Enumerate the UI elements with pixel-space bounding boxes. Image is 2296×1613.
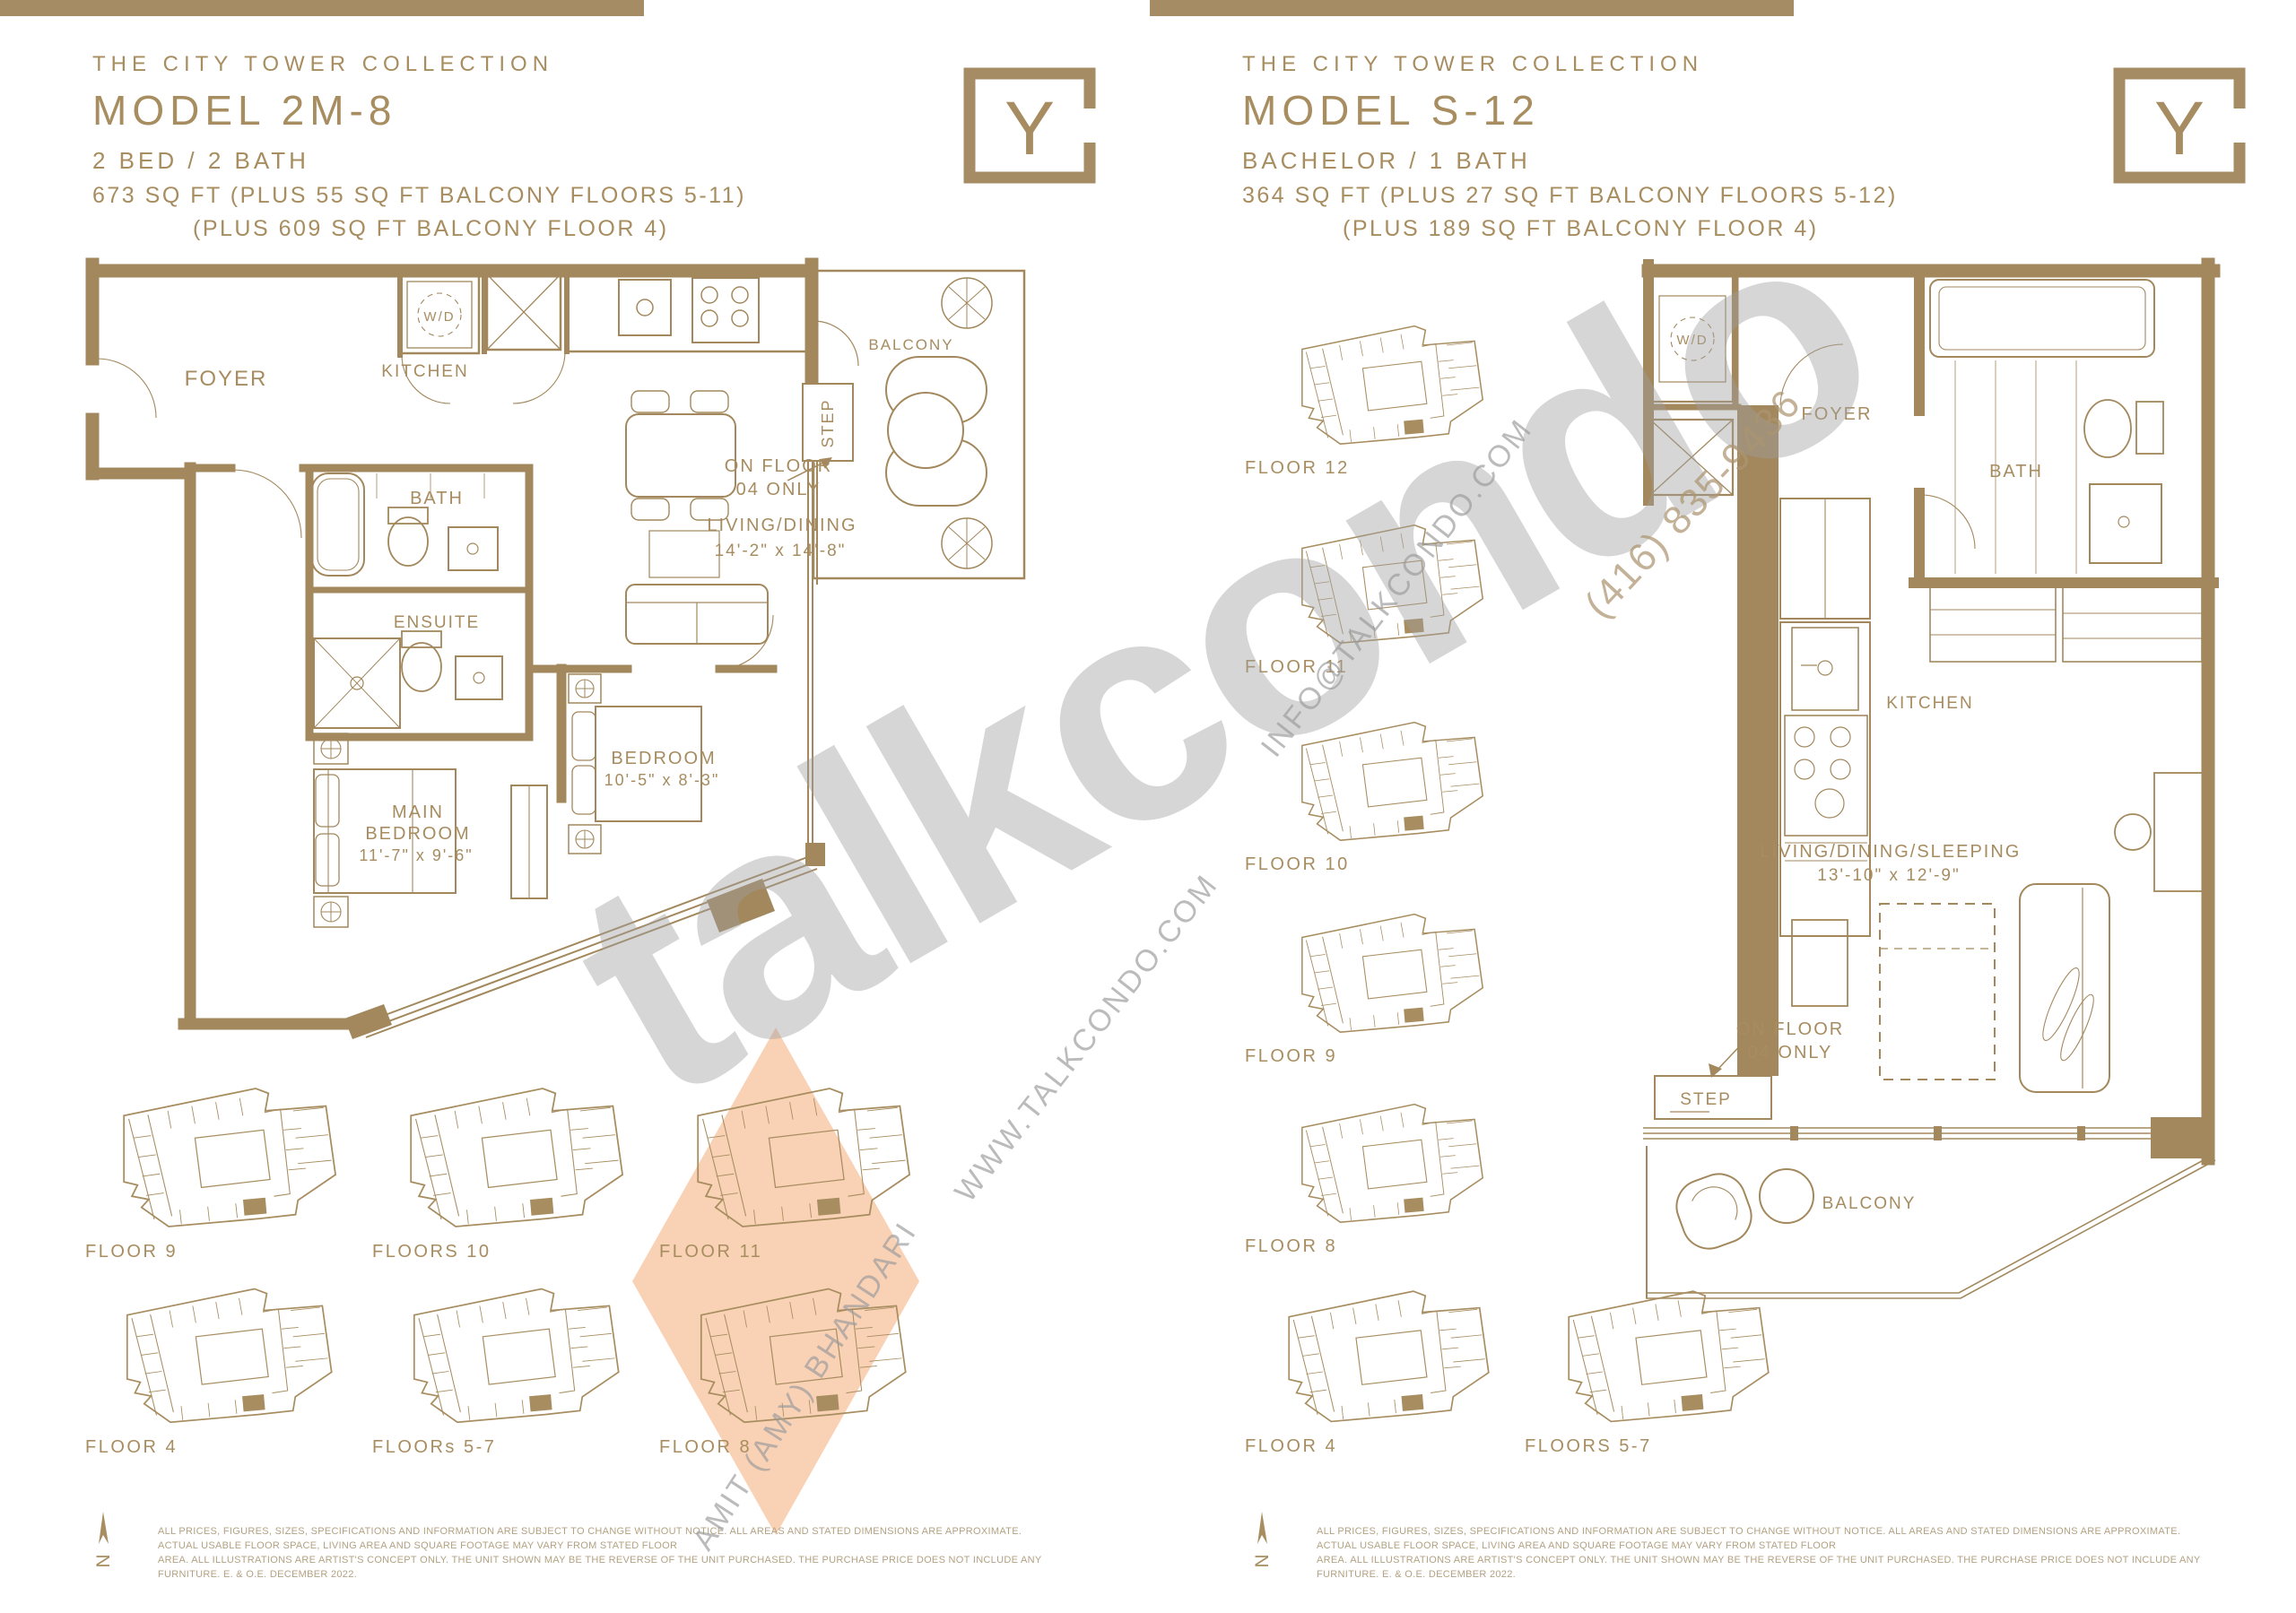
room-dims-living: 14'-2" x 14'-8": [715, 542, 847, 560]
keyplan-drawing: [659, 1275, 928, 1429]
room-label-kitchen: KITCHEN: [1886, 694, 1973, 713]
room-label-living: LIVING/DINING: [707, 516, 857, 535]
on-floor-note-line2: 04 ONLY: [1748, 1043, 1833, 1062]
keyplan-drawing: [1245, 710, 1523, 846]
disclaimer-line2: AREA. ALL ILLUSTRATIONS ARE ARTIST'S CON…: [1317, 1553, 2213, 1582]
unit-area-line1: 673 SQ FT (PLUS 55 SQ FT BALCONY FLOORS …: [92, 183, 746, 209]
keyplan-floors-5-7: FLOORs 5-7: [372, 1275, 641, 1458]
keyplan-drawing: [1245, 513, 1523, 649]
unit-area-line2: (PLUS 189 SQ FT BALCONY FLOOR 4): [1242, 216, 1898, 242]
keyplan-drawing: [85, 1074, 354, 1234]
top-accent-bar-right: [1150, 0, 1794, 16]
on-floor-note-line2: 04 ONLY: [736, 480, 822, 499]
keyplan-label: FLOOR 11: [1245, 657, 1523, 678]
unit-type: BACHELOR / 1 BATH: [1242, 147, 1898, 175]
floorplan-s12: W/D FOYER BATH KITCHEN LIVING/DINING/SLE…: [1641, 256, 2233, 1314]
keyplan-floor-12: FLOOR 12: [1245, 314, 1523, 479]
keyplan-floor-11: FLOOR 11: [659, 1074, 928, 1262]
north-arrow-icon: N: [86, 1508, 118, 1572]
room-label-ensuite: ENSUITE: [394, 613, 480, 632]
keyplan-label: FLOORs 5-7: [372, 1437, 641, 1458]
keyplan-floors-10: FLOORS 10: [372, 1074, 641, 1262]
north-letter: N: [91, 1554, 113, 1567]
room-label-living: LIVING/DINING/SLEEPING: [1761, 842, 2022, 862]
room-label-main-bedroom-1: MAIN: [392, 802, 444, 822]
unit-area-line2: (PLUS 609 SQ FT BALCONY FLOOR 4): [92, 216, 746, 242]
keyplan-floors-5-7: FLOORS 5-7: [1525, 1278, 1794, 1457]
builder-y-logo-icon: Y: [963, 67, 1096, 188]
keyplan-drawing: [1245, 1278, 1514, 1428]
disclaimer-line2: AREA. ALL ILLUSTRATIONS ARE ARTIST'S CON…: [158, 1553, 1055, 1582]
keyplan-floor-11: FLOOR 11: [1245, 513, 1523, 678]
room-label-bedroom: BEDROOM: [611, 749, 716, 768]
north-letter: N: [1250, 1554, 1272, 1567]
room-dims-main-bedroom: 11'-7" x 9'-6": [359, 846, 473, 864]
left-unit-header: THE CITY TOWER COLLECTION MODEL 2M-8 2 B…: [92, 52, 746, 249]
keyplan-label: FLOOR 12: [1245, 458, 1523, 479]
keyplan-label: FLOOR 9: [85, 1242, 354, 1262]
keyplan-floor-8: FLOOR 8: [1245, 1092, 1523, 1257]
keyplan-drawing: [85, 1275, 354, 1429]
keyplan-drawing: [1245, 314, 1523, 450]
model-title: MODEL 2M-8: [92, 86, 746, 134]
logo-letter: Y: [2154, 86, 2205, 170]
unit-type: 2 BED / 2 BATH: [92, 147, 746, 175]
room-label-bath: BATH: [410, 489, 464, 508]
keyplan-label: FLOOR 4: [1245, 1436, 1514, 1457]
right-unit-header: THE CITY TOWER COLLECTION MODEL S-12 BAC…: [1242, 52, 1898, 249]
unit-area-line1: 364 SQ FT (PLUS 27 SQ FT BALCONY FLOORS …: [1242, 183, 1898, 209]
north-arrow-icon: N: [1245, 1508, 1277, 1572]
room-dims-bedroom: 10'-5" x 8'-3": [604, 771, 720, 789]
room-label-balcony: BALCONY: [868, 336, 953, 353]
disclaimer-line1: ALL PRICES, FIGURES, SIZES, SPECIFICATIO…: [158, 1524, 1055, 1553]
keyplan-label: FLOOR 8: [659, 1437, 928, 1458]
on-floor-note-line1: ON FLOOR: [725, 456, 832, 476]
logo-letter: Y: [1004, 86, 1055, 170]
room-label-kitchen: KITCHEN: [381, 362, 468, 381]
keyplan-drawing: [372, 1074, 641, 1234]
room-dims-living: 13'-10" x 12'-9": [1817, 866, 1960, 885]
keyplan-label: FLOOR 11: [659, 1242, 928, 1262]
keyplan-drawing: [1245, 902, 1523, 1038]
keyplan-drawing: [1525, 1278, 1794, 1428]
disclaimer-line1: ALL PRICES, FIGURES, SIZES, SPECIFICATIO…: [1317, 1524, 2213, 1553]
disclaimer-right: ALL PRICES, FIGURES, SIZES, SPECIFICATIO…: [1317, 1524, 2213, 1582]
model-title: MODEL S-12: [1242, 86, 1898, 134]
top-accent-bar-left: [0, 0, 644, 16]
room-label-main-bedroom-2: BEDROOM: [365, 824, 470, 844]
step-label: STEP: [819, 398, 837, 447]
keyplan-label: FLOOR 4: [85, 1437, 354, 1458]
room-label-foyer: FOYER: [185, 367, 268, 391]
builder-y-logo-icon: Y: [2113, 67, 2246, 188]
on-floor-note-line1: ON FLOOR: [1736, 1019, 1844, 1039]
keyplan-label: FLOORS 5-7: [1525, 1436, 1794, 1457]
collection-title: THE CITY TOWER COLLECTION: [1242, 52, 1898, 77]
keyplan-floor-9: FLOOR 9: [1245, 902, 1523, 1067]
keyplan-floor-4: FLOOR 4: [85, 1275, 354, 1458]
fixture-label-wd: W/D: [1676, 333, 1708, 348]
disclaimer-left: ALL PRICES, FIGURES, SIZES, SPECIFICATIO…: [158, 1524, 1055, 1582]
collection-title: THE CITY TOWER COLLECTION: [92, 52, 746, 77]
keyplan-label: FLOOR 9: [1245, 1046, 1523, 1067]
room-label-foyer: FOYER: [1802, 404, 1873, 424]
keyplan-floor-4: FLOOR 4: [1245, 1278, 1514, 1457]
keyplan-drawing: [659, 1074, 928, 1234]
room-label-balcony: BALCONY: [1822, 1194, 1917, 1213]
keyplan-label: FLOOR 10: [1245, 854, 1523, 875]
keyplan-floor-10: FLOOR 10: [1245, 710, 1523, 875]
keyplan-label: FLOORS 10: [372, 1242, 641, 1262]
step-label: STEP: [1680, 1090, 1732, 1109]
floorplan-2m8: FOYER W/D KITCHEN BATH ENSUITE BALCONY S…: [85, 256, 1027, 1045]
keyplan-drawing: [372, 1275, 641, 1429]
room-label-bath: BATH: [1989, 462, 2043, 481]
keyplan-floor-9: FLOOR 9: [85, 1074, 354, 1262]
fixture-label-wd: W/D: [423, 309, 455, 325]
keyplan-label: FLOOR 8: [1245, 1236, 1523, 1257]
keyplan-drawing: [1245, 1092, 1523, 1228]
keyplan-floor-8: FLOOR 8: [659, 1275, 928, 1458]
